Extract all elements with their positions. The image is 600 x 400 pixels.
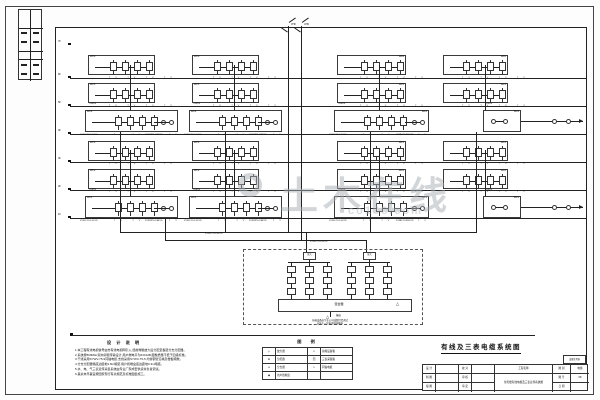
- terminal-labels: TV TV TV TV: [109, 77, 167, 80]
- panel-label: WF6: [194, 56, 214, 60]
- tap-symbol: [250, 90, 257, 99]
- panel-label: WF6: [90, 56, 110, 60]
- riser-line: [234, 65, 235, 110]
- tap-symbol: [238, 90, 245, 99]
- terminal-labels: TV TV TV TV: [462, 77, 520, 80]
- panel-label: WF1: [504, 197, 519, 201]
- tap-symbol: [110, 176, 117, 185]
- tap-symbol: [110, 148, 117, 157]
- tap-symbol: [388, 117, 395, 126]
- tap-symbol: [499, 62, 506, 71]
- tap-symbol: [134, 176, 141, 185]
- legend-name: 三表采集箱: [321, 355, 353, 363]
- tb-sheet-no-label: 图 号: [553, 374, 571, 383]
- tap-symbol: [146, 90, 153, 99]
- cable-label: SYWV-75-9 SC25: [249, 134, 289, 137]
- separator-line: [72, 335, 535, 336]
- panel-label: WF3: [90, 142, 110, 146]
- headend-component: [305, 266, 314, 273]
- trunk-amplifier: [552, 119, 557, 124]
- tap-symbol: [250, 62, 257, 71]
- power-label: ~220V: [485, 103, 507, 107]
- notes-line: 6.其余未尽事宜按国家现行有关规范及标准图集施工。: [75, 372, 220, 377]
- terminal-labels: TV TV TV TV: [213, 105, 271, 108]
- amp-link: [496, 207, 503, 208]
- floor-label: 6F: [58, 74, 68, 78]
- power-label: ~220V: [193, 189, 215, 193]
- tap-symbol: [226, 176, 233, 185]
- cable-label: SYWV-75-9 SC25: [396, 220, 436, 223]
- headend-component: [287, 277, 296, 284]
- tap-symbol: [110, 90, 117, 99]
- floor-label: 3F: [58, 158, 68, 162]
- floor-tick: [68, 188, 71, 190]
- legend-symbol: ▷: [263, 347, 276, 355]
- panel-label: WF3: [491, 142, 506, 146]
- headend-component: [323, 288, 332, 295]
- tap-symbol: [499, 176, 506, 185]
- collector-line: [120, 232, 477, 233]
- headend-component: [347, 288, 356, 295]
- tap-symbol: [214, 90, 221, 99]
- tap-symbol: [463, 90, 470, 99]
- panel-label: WF4: [412, 111, 427, 115]
- tap-symbol: [250, 148, 257, 157]
- legend-name: 分支器: [276, 363, 308, 371]
- floor-tick: [68, 132, 71, 134]
- tb-label-check: 校 对: [459, 365, 472, 374]
- legend-title: 图 例: [262, 340, 354, 345]
- antenna-arm-icon: [281, 27, 288, 32]
- legend-symbol: ⌀: [263, 363, 276, 371]
- tap-symbol: [134, 148, 141, 157]
- legend-name: 分配器: [276, 355, 308, 363]
- tap-symbol: [361, 62, 368, 71]
- tb-label-approve: 审 定: [459, 383, 472, 392]
- tb-label-review: 审 核: [459, 374, 472, 383]
- panel-label: WF5: [389, 84, 404, 88]
- tb-project-label: 工程名称: [495, 365, 553, 374]
- cable-label: SYWV-75-5 SC20: [184, 134, 224, 137]
- tap-symbol: [463, 62, 470, 71]
- cable-label: SYWV-75-9 SC25: [145, 134, 185, 137]
- floor-label: 7F: [58, 41, 68, 45]
- floor-tick: [68, 216, 71, 218]
- headend-component: [383, 277, 392, 284]
- headend-component: [287, 288, 296, 295]
- cad-drawing-page: 土木在线 co188.com 7F6F5F4F3F2F1FWF6TV TV TV…: [0, 0, 600, 400]
- tap-symbol: [475, 62, 482, 71]
- headend-component: [365, 288, 374, 295]
- legend-symbol: ∿: [308, 363, 321, 371]
- tap-symbol: [487, 148, 494, 157]
- panel-label: WF4: [504, 111, 519, 115]
- tb-date-label: 日 期: [553, 383, 571, 392]
- tap-symbol: [238, 148, 245, 157]
- trunk-amplifier: [552, 205, 557, 210]
- feeder-cable-label: SYWV-75-9 SC32: [205, 233, 245, 236]
- terminal-labels: TV TV TV TV: [109, 191, 167, 194]
- panel-label: WF3: [194, 142, 214, 146]
- tap-symbol: [364, 117, 371, 126]
- power-label: ~220V: [338, 103, 360, 107]
- tap-symbol: [146, 148, 153, 157]
- headend-component: [365, 266, 374, 273]
- legend-name: 前端设备箱: [321, 347, 353, 355]
- terminal-labels: TV TV TV TV: [109, 105, 167, 108]
- tap-symbol: [397, 90, 404, 99]
- legend-symbol: ◉: [263, 371, 276, 379]
- trunk-arrow: [579, 205, 583, 209]
- terminal-labels: TV TV TV TV: [360, 105, 418, 108]
- headend-component: [347, 266, 356, 273]
- amp-circle: [273, 120, 278, 125]
- panel-label: WF4: [87, 111, 107, 115]
- cable-label: SYWV-75-5 SC20: [329, 134, 369, 137]
- panel-label: WF6: [491, 56, 506, 60]
- tap-symbol: [361, 90, 368, 99]
- legend-symbol: ▭: [308, 347, 321, 355]
- tap-symbol: [231, 117, 238, 126]
- tap-symbol: [127, 203, 134, 212]
- legend-symbol: [308, 371, 321, 379]
- watermark-subtext: co188.com: [348, 205, 423, 217]
- tap-symbol: [214, 62, 221, 71]
- design-notes: 设 计 说 明 1.本工程有线电视信号由市有线电视网引入,经前端箱放大后分配至各…: [75, 341, 220, 377]
- combiner-label: 混合器: [325, 303, 353, 308]
- riser-line: [485, 65, 486, 110]
- tap-symbol: [146, 176, 153, 185]
- floor-label: 5F: [58, 102, 68, 106]
- tb-date-value: [571, 383, 589, 392]
- tap-symbol: [122, 90, 129, 99]
- headend-component: [323, 277, 332, 284]
- stamp-cell: 出图专用章: [563, 355, 586, 364]
- tb-value: [436, 374, 459, 383]
- tb-label-design: 设 计: [423, 365, 436, 374]
- amp-link: [496, 121, 503, 122]
- floor-label: 1F: [58, 214, 68, 218]
- amp-link: [258, 122, 273, 123]
- terminal-labels: TV TV TV TV: [109, 163, 167, 166]
- legend-name: 用户终端盒: [276, 371, 308, 379]
- panel-label: WF4: [191, 111, 211, 115]
- tap-symbol: [499, 148, 506, 157]
- tb-label-draw: 制 图: [423, 374, 436, 383]
- cable-label: SYWV-75-5 SC20: [80, 134, 120, 137]
- tap-symbol: [226, 90, 233, 99]
- headend-component: [365, 277, 374, 284]
- headend-component: [383, 288, 392, 295]
- legend-name: 同轴电缆: [321, 363, 353, 371]
- tap-symbol: [127, 117, 134, 126]
- title-block: 出图专用章 设 计 制 图 描 图 校 对 审 核 审 定 工程名称 住宅楼有线…: [422, 355, 589, 392]
- amp-link: [154, 208, 169, 209]
- tap-symbol: [226, 62, 233, 71]
- panel-label: WF1: [87, 197, 107, 201]
- power-label: ~220V: [193, 103, 215, 107]
- legend-name: [321, 371, 353, 379]
- legend-symbol: 回: [308, 355, 321, 363]
- trunk-arrow: [579, 119, 583, 123]
- tap-symbol: [139, 203, 146, 212]
- floor-tick: [68, 104, 71, 106]
- headend-component: [287, 266, 296, 273]
- tb-sheet-type-value: 电施: [571, 365, 589, 374]
- amp-link: [154, 122, 169, 123]
- headend-amp-label: 放大: [364, 254, 375, 258]
- tb-project-name: 住宅楼有线电视及三表远传系统图: [495, 374, 553, 392]
- trunk-amplifier: [566, 119, 571, 124]
- tap-symbol: [463, 148, 470, 157]
- amp-link: [405, 122, 420, 123]
- legend-symbol: ⊟: [263, 355, 276, 363]
- watermark-logo: [238, 173, 262, 197]
- title-block-grid: 设 计 制 图 描 图 校 对 审 核 审 定 工程名称 住宅楼有线电视及三表远…: [422, 364, 588, 391]
- tb-value: [436, 383, 459, 392]
- terminal-labels: TV TV TV TV: [213, 77, 271, 80]
- power-label: ~220V: [89, 103, 111, 107]
- tb-sheet-no-value: 08: [571, 374, 589, 383]
- antenna-mast: [288, 26, 289, 40]
- panel-label: WF3: [389, 142, 404, 146]
- tap-symbol: [122, 62, 129, 71]
- trunk-amplifier: [566, 205, 571, 210]
- antenna-label: UHF: [304, 24, 314, 28]
- tap-symbol: [134, 90, 141, 99]
- legend-table: ▷ 放大器 ▭ 前端设备箱 ⊟ 分配器 回 三表采集箱 ⌀ 分支器 ∿ 同轴电缆…: [262, 347, 353, 380]
- tb-value: [472, 383, 495, 392]
- antenna-mast: [301, 26, 302, 40]
- terminal-labels: TV TV TV TV: [360, 77, 418, 80]
- amp-circle: [503, 119, 508, 124]
- panel-label: WF5: [194, 84, 214, 88]
- riser-line: [120, 132, 121, 232]
- panel-label: WF2: [90, 170, 110, 174]
- riser-line: [165, 218, 166, 240]
- panel-label: WF5: [90, 84, 110, 88]
- tap-symbol: [243, 117, 250, 126]
- panel-label: WF5: [491, 84, 506, 88]
- tap-symbol: [397, 62, 404, 71]
- tap-symbol: [487, 62, 494, 71]
- tap-symbol: [385, 62, 392, 71]
- headend-component: [305, 277, 314, 284]
- tb-value: [436, 365, 459, 374]
- tb-value: [472, 365, 495, 374]
- cable-label: SYWV-75-5 SC20: [329, 220, 369, 223]
- tap-symbol: [110, 62, 117, 71]
- headend-component: [347, 277, 356, 284]
- headend-box: [243, 249, 423, 325]
- riser-line: [130, 65, 131, 110]
- tap-symbol: [238, 62, 245, 71]
- tap-symbol: [122, 176, 129, 185]
- feeder-cable-label: SYWV-75-9 SC32: [310, 241, 350, 244]
- tap-symbol: [214, 148, 221, 157]
- tap-symbol: [397, 148, 404, 157]
- amp-circle: [420, 120, 425, 125]
- tb-sheet-type-label: 图 别: [553, 365, 571, 374]
- floor-tick: [68, 76, 71, 78]
- tap-symbol: [487, 90, 494, 99]
- watermark: 土木在线 co188.com: [236, 165, 496, 220]
- amp-circle: [503, 205, 508, 210]
- floor-label: 2F: [58, 186, 68, 190]
- tap-symbol: [134, 62, 141, 71]
- drawing-title: 有线及三表电缆系统图: [441, 341, 521, 354]
- headend-component: [383, 266, 392, 273]
- tap-symbol: [499, 90, 506, 99]
- panel-label: WF1: [191, 197, 211, 201]
- tap-symbol: [139, 117, 146, 126]
- tap-symbol: [385, 148, 392, 157]
- tap-symbol: [146, 62, 153, 71]
- legend-name: 放大器: [276, 347, 308, 355]
- headend-note: 安装于一层电视前端箱内: [255, 323, 405, 326]
- tap-symbol: [219, 117, 226, 126]
- headend-component: [323, 266, 332, 273]
- combiner-symbol: △: [396, 302, 404, 308]
- headend-component: [305, 288, 314, 295]
- notes-title: 设 计 说 明: [89, 341, 159, 346]
- floor-tick: [68, 43, 71, 45]
- floor-tick: [68, 160, 71, 162]
- floor-label: 4F: [58, 130, 68, 134]
- headend-amp-label: 放大: [304, 254, 315, 258]
- tap-symbol: [361, 148, 368, 157]
- power-label: ~220V: [89, 189, 111, 193]
- cable-label: SYWV-75-5 SC20: [184, 220, 224, 223]
- tb-value: [472, 374, 495, 383]
- tap-symbol: [226, 148, 233, 157]
- tap-symbol: [385, 90, 392, 99]
- amp-circle: [169, 120, 174, 125]
- amp-circle: [169, 206, 174, 211]
- riser-line: [225, 132, 226, 232]
- cable-label: SYWV-75-9 SC25: [249, 220, 289, 223]
- tap-symbol: [475, 90, 482, 99]
- panel-label: WF6: [389, 56, 404, 60]
- cable-label: SYWV-75-9 SC25: [396, 134, 436, 137]
- legend: 图 例 ▷ 放大器 ▭ 前端设备箱 ⊟ 分配器 回 三表采集箱 ⌀ 分支器 ∿ …: [262, 340, 354, 380]
- riser-line: [234, 150, 235, 196]
- cable-label: SYWV-75-5 SC20: [80, 220, 120, 223]
- tb-label-trace: 描 图: [423, 383, 436, 392]
- riser-line: [379, 65, 380, 110]
- tap-symbol: [115, 117, 122, 126]
- panel-label: WF2: [194, 170, 214, 174]
- riser-line: [130, 150, 131, 196]
- tap-symbol: [214, 176, 221, 185]
- tap-symbol: [376, 117, 383, 126]
- tap-symbol: [122, 148, 129, 157]
